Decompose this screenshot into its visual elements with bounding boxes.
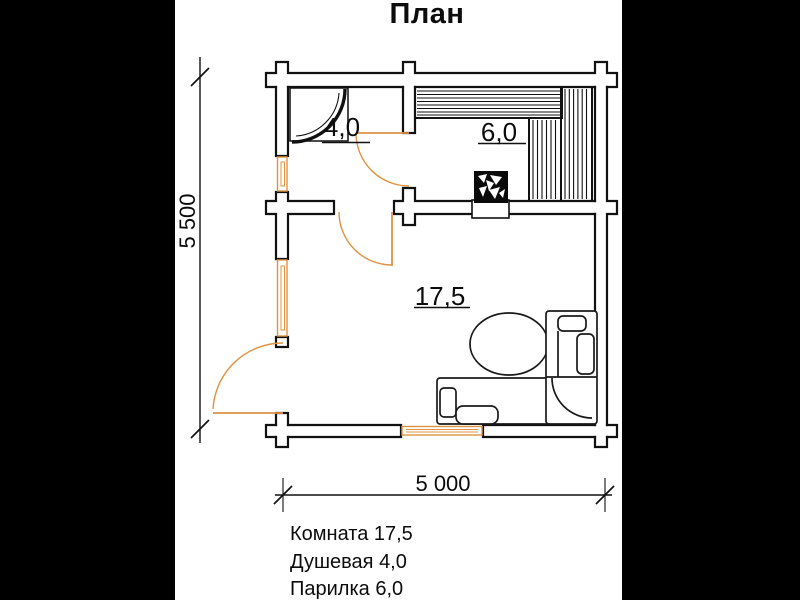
plan-title: План	[390, 0, 465, 31]
bench-top-slats	[417, 91, 560, 115]
screenshot-stage: План 5 500 5 000 4,0 6,0 17,5 Комната 17…	[0, 0, 800, 600]
sofa-pillow-top	[558, 316, 586, 331]
legend-item-room: Комната 17,5	[290, 521, 413, 549]
dimension-height-label: 5 500	[174, 171, 202, 271]
bench-right-slats	[565, 89, 587, 199]
bench-top-outline	[415, 87, 562, 118]
sofa-cushion-bottom	[456, 406, 498, 424]
legend-item-steam: Парилка 6,0	[290, 576, 413, 600]
sofa-cushion-right	[577, 334, 594, 374]
window-bottom	[402, 427, 482, 436]
sofa-armrest	[440, 388, 456, 417]
bench-right-outline	[561, 87, 592, 201]
door-room	[339, 212, 392, 266]
room-label-main: 17,5	[415, 283, 466, 309]
doors	[213, 133, 409, 413]
floor-plan-drawing	[0, 0, 800, 600]
dimension-width-label: 5 000	[415, 471, 470, 497]
legend-item-shower: Душевая 4,0	[290, 549, 413, 577]
legend: Комната 17,5 Душевая 4,0 Парилка 6,0	[290, 521, 413, 600]
door-shower	[356, 133, 409, 186]
door-entrance	[213, 343, 283, 413]
window-left-lower	[278, 260, 288, 336]
bench-step-outline	[529, 118, 561, 201]
furniture	[437, 311, 597, 424]
room-label-steam: 6,0	[481, 119, 517, 145]
window-left-upper	[278, 157, 288, 191]
room-label-shower: 4,0	[324, 114, 360, 140]
table	[470, 313, 548, 375]
stove	[472, 171, 509, 218]
bench-step-slats	[533, 120, 556, 199]
top-wall	[266, 62, 617, 87]
right-wall	[595, 87, 617, 447]
